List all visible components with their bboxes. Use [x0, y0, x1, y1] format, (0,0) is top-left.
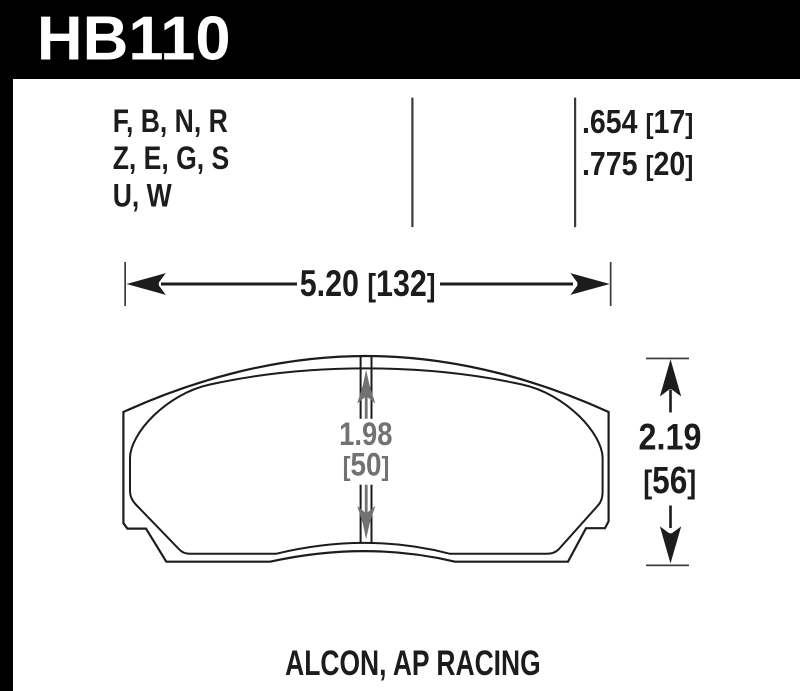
svg-text:HB110: HB110	[37, 4, 231, 73]
svg-text:F, B, N, R: F, B, N, R	[113, 104, 228, 140]
svg-text:5.20 [132]: 5.20 [132]	[300, 263, 436, 305]
svg-text:Z, E, G, S: Z, E, G, S	[113, 141, 230, 177]
svg-text:ALCON, AP RACING: ALCON, AP RACING	[285, 644, 540, 684]
svg-text:2.19: 2.19	[639, 417, 702, 459]
svg-text:[50]: [50]	[343, 448, 390, 483]
svg-text:[56]: [56]	[643, 459, 696, 501]
svg-text:U, W: U, W	[113, 178, 172, 214]
svg-text:.654 [17]: .654 [17]	[582, 103, 693, 140]
svg-text:.775 [20]: .775 [20]	[582, 145, 693, 182]
